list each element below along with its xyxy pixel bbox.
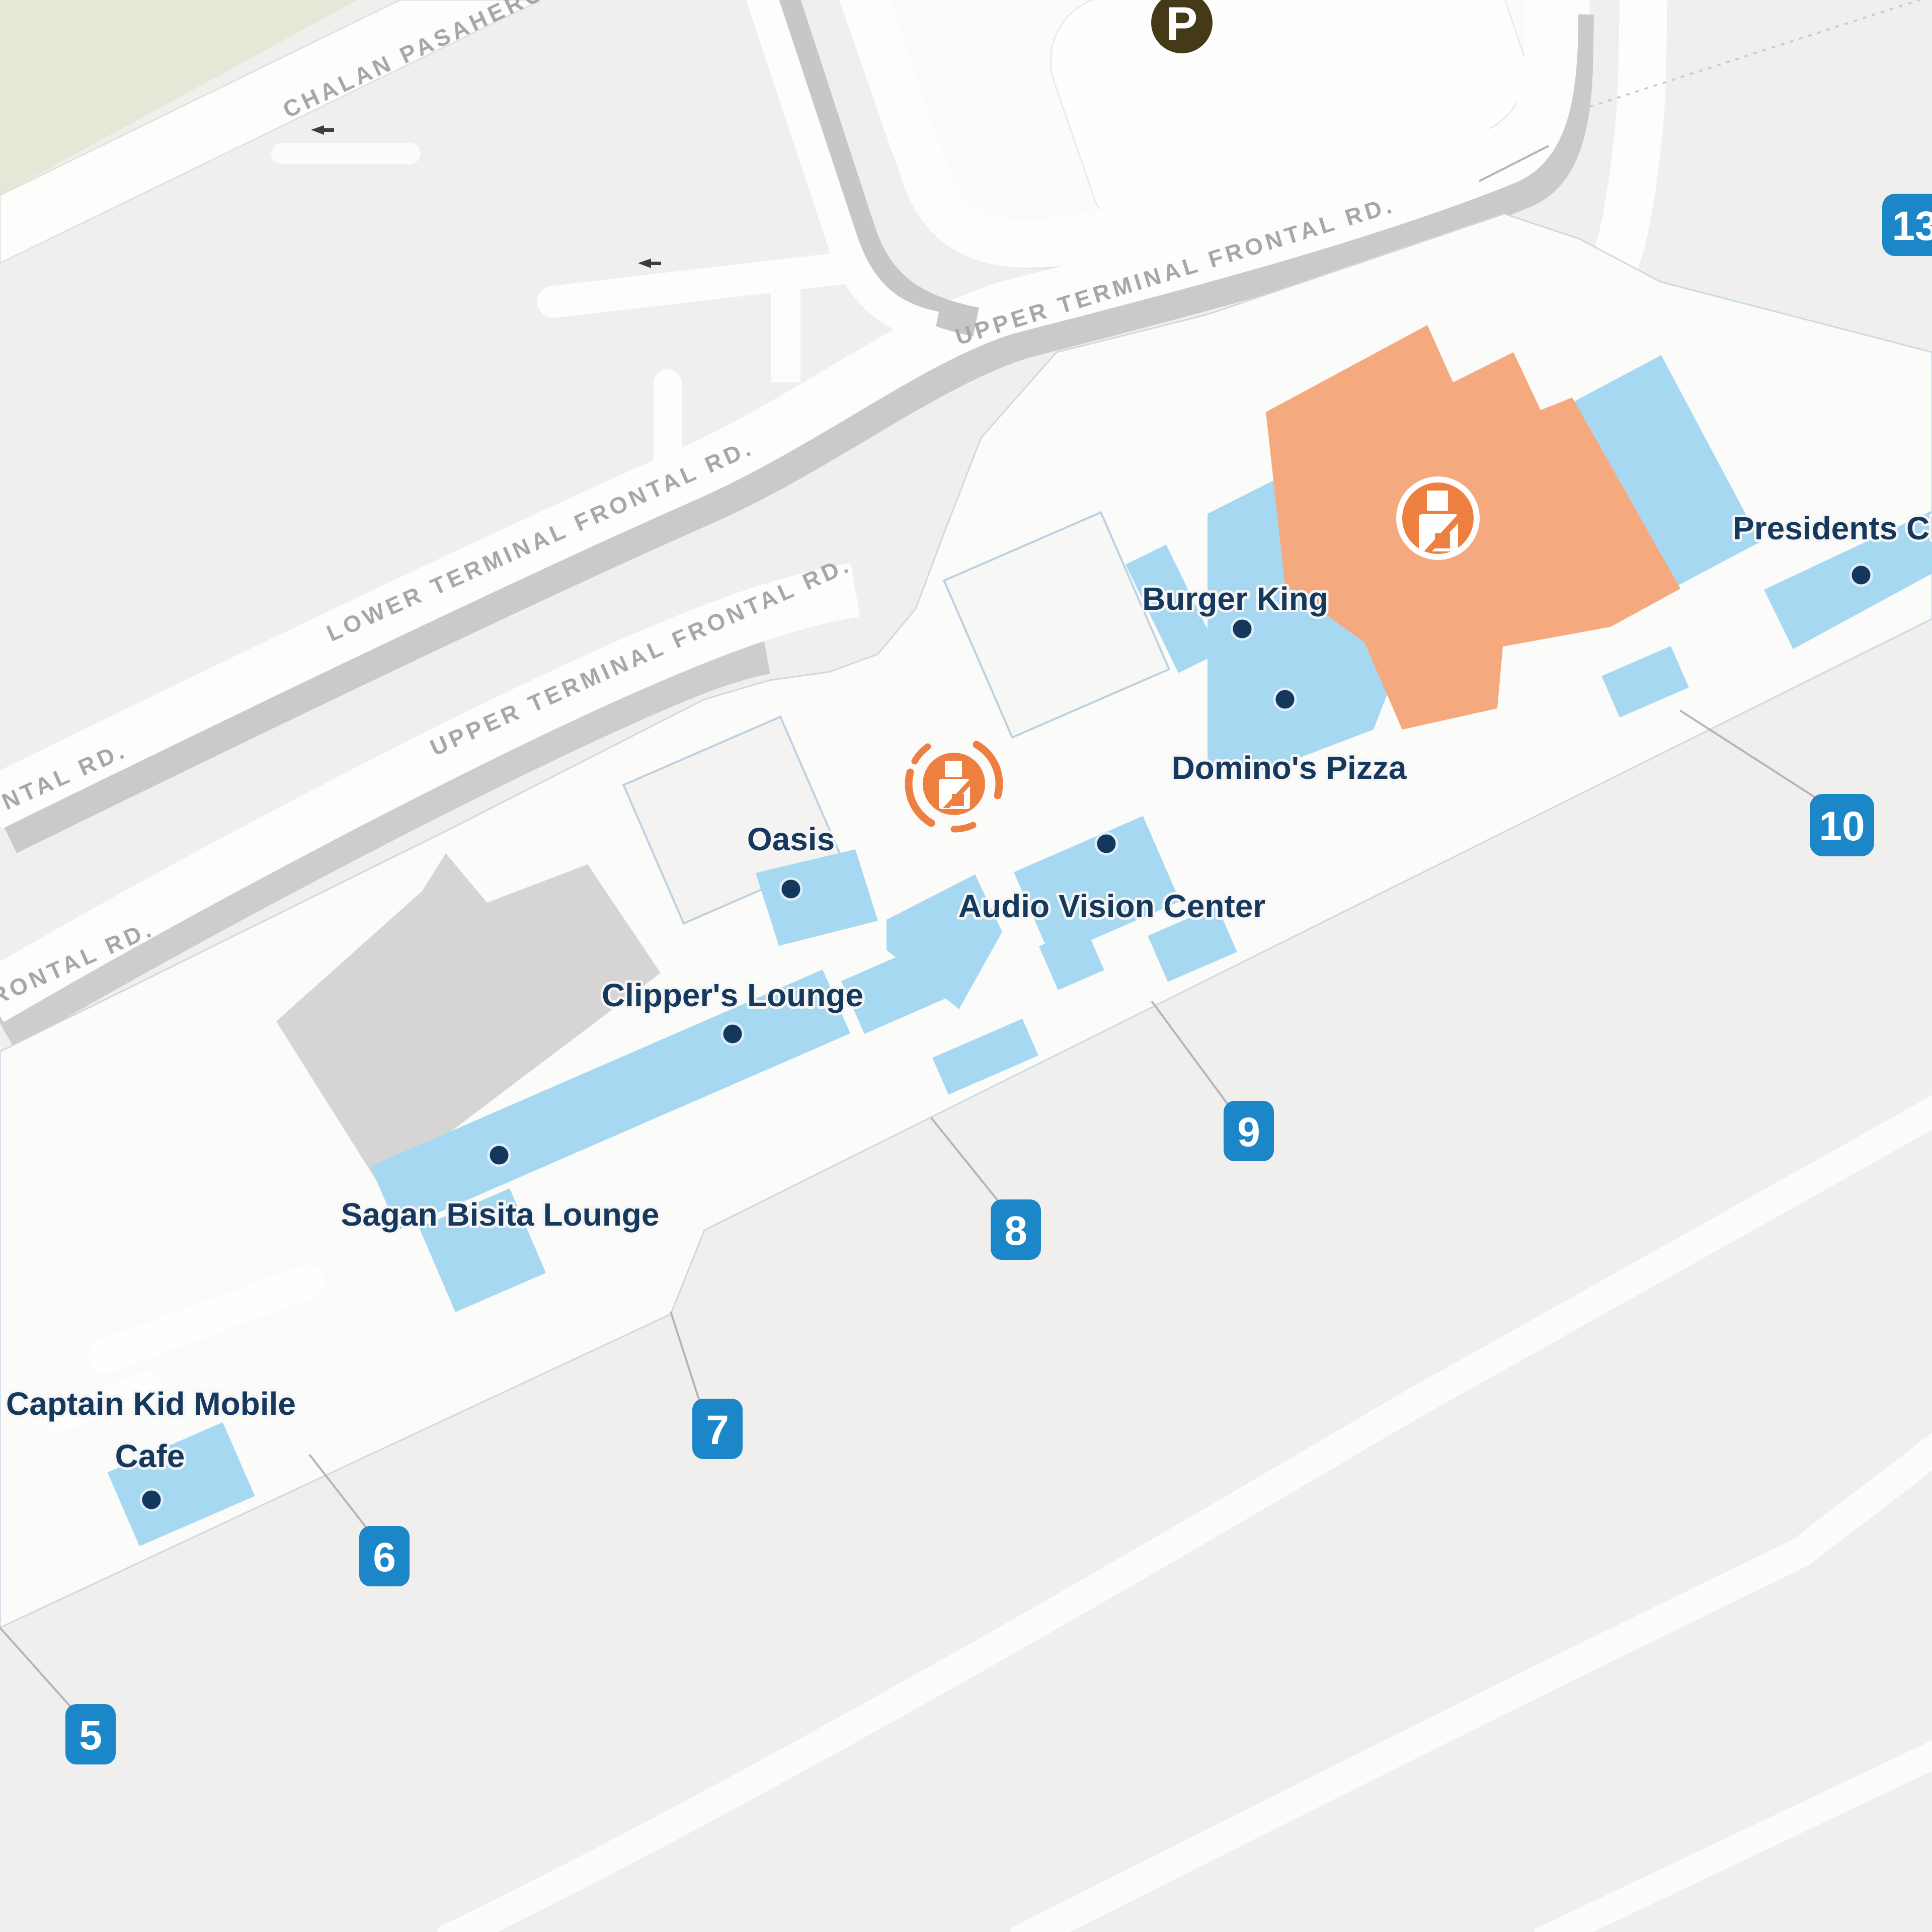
svg-text:Cafe: Cafe (115, 1438, 185, 1474)
svg-text:6: 6 (373, 1535, 396, 1580)
svg-text:Clipper's Lounge: Clipper's Lounge (602, 977, 863, 1013)
svg-text:8: 8 (1004, 1208, 1027, 1254)
svg-text:P: P (1166, 0, 1198, 50)
svg-text:Audio Vision Center: Audio Vision Center (958, 888, 1265, 924)
svg-text:7: 7 (706, 1407, 729, 1453)
svg-text:Domino's Pizza: Domino's Pizza (1172, 750, 1407, 786)
svg-text:13: 13 (1892, 203, 1932, 249)
svg-text:5: 5 (79, 1713, 102, 1758)
svg-text:Burger King: Burger King (1142, 581, 1328, 617)
svg-text:Sagan Bisita Lounge: Sagan Bisita Lounge (341, 1196, 660, 1233)
svg-text:10: 10 (1819, 803, 1865, 849)
svg-text:9: 9 (1237, 1109, 1260, 1155)
svg-text:Captain Kid Mobile: Captain Kid Mobile (6, 1386, 296, 1422)
svg-text:Presidents Cl: Presidents Cl (1733, 510, 1932, 546)
svg-text:Oasis: Oasis (747, 821, 835, 857)
